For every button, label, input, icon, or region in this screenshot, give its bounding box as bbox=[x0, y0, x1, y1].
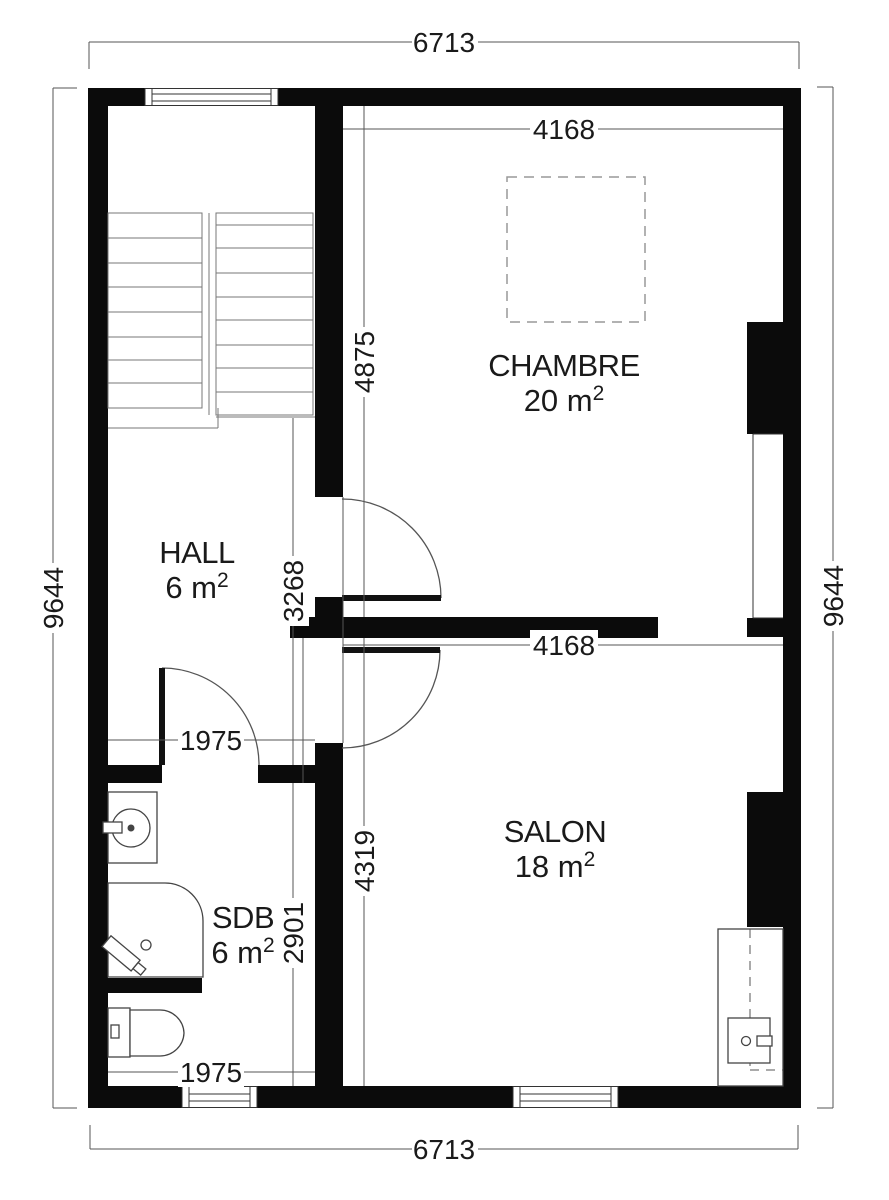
dim-sdb-depth: 2901 bbox=[277, 783, 309, 1086]
door-chambre bbox=[342, 499, 441, 598]
dim-hall-depth-label: 3268 bbox=[278, 560, 309, 622]
dim-salon-width-label: 4168 bbox=[533, 630, 595, 661]
label-chambre-area: 20 m2 bbox=[524, 382, 605, 418]
dim-top-label: 6713 bbox=[413, 27, 475, 58]
label-salon-area: 18 m2 bbox=[515, 848, 596, 884]
window-bottom-sdb bbox=[182, 1087, 257, 1108]
wall-chambre-salon-right-stub bbox=[747, 618, 783, 637]
sink-drain bbox=[128, 825, 135, 832]
wall-center-upper bbox=[315, 106, 343, 497]
sink bbox=[103, 792, 157, 863]
label-chambre: CHAMBRE bbox=[488, 348, 640, 383]
dim-chambre-width: 4168 bbox=[343, 114, 783, 145]
staircase bbox=[108, 213, 315, 428]
wall-left bbox=[88, 88, 108, 1108]
dim-hall-opening: 1975 bbox=[108, 725, 315, 756]
dim-hall-opening-label: 1975 bbox=[180, 725, 242, 756]
dim-chambre-depth-label: 4875 bbox=[349, 331, 380, 393]
dim-right: 9644 bbox=[817, 87, 849, 1108]
dim-bottom: 6713 bbox=[90, 1125, 798, 1165]
wall-chambre-salon bbox=[290, 617, 658, 638]
wall-hall-sdb-left bbox=[108, 765, 162, 783]
wall-right bbox=[783, 88, 801, 1108]
window-bottom-salon bbox=[513, 1087, 618, 1108]
toilet-button bbox=[111, 1025, 119, 1038]
wall-center-lower bbox=[315, 743, 343, 1086]
dim-chambre-width-label: 4168 bbox=[533, 114, 595, 145]
window-top bbox=[145, 89, 278, 106]
label-sdb-area: 6 m2 bbox=[211, 934, 274, 970]
toilet bbox=[108, 1008, 184, 1057]
door-salon bbox=[342, 650, 440, 748]
dim-chambre-depth: 4875 bbox=[348, 106, 380, 617]
skylight-dashed-square bbox=[507, 177, 645, 322]
boiler-unit bbox=[718, 929, 783, 1086]
dim-salon-depth-label: 4319 bbox=[349, 830, 380, 892]
dim-left-label: 9644 bbox=[38, 567, 69, 629]
fixtures bbox=[102, 792, 203, 1057]
dim-top: 6713 bbox=[89, 26, 799, 69]
stair-landing bbox=[108, 408, 315, 428]
bathtub bbox=[102, 883, 203, 977]
stair-right-flight bbox=[216, 213, 313, 415]
dim-salon-depth: 4319 bbox=[348, 638, 380, 1086]
dim-sdb-opening-label: 1975 bbox=[180, 1057, 242, 1088]
pier-salon-right bbox=[747, 792, 783, 927]
label-hall-area: 6 m2 bbox=[165, 569, 228, 605]
dim-left: 9644 bbox=[37, 88, 77, 1108]
dim-hall-depth: 3268 bbox=[277, 418, 309, 765]
toilet-bowl bbox=[130, 1010, 184, 1056]
sink-tap bbox=[103, 822, 122, 833]
dim-sdb-depth-label: 2901 bbox=[278, 902, 309, 964]
label-sdb: SDB bbox=[212, 900, 274, 935]
stair-left-flight bbox=[108, 213, 202, 408]
dim-bottom-label: 6713 bbox=[413, 1134, 475, 1165]
dim-sdb-opening: 1975 bbox=[108, 1057, 315, 1088]
pier-chambre-right bbox=[747, 322, 783, 434]
floor-plan: 6713 6713 9644 9644 bbox=[0, 0, 889, 1200]
wall-hall-sdb-right bbox=[258, 765, 343, 783]
wall-sdb-stub bbox=[108, 978, 202, 993]
label-salon: SALON bbox=[504, 814, 607, 849]
window-chambre-right bbox=[753, 434, 783, 618]
label-hall: HALL bbox=[159, 535, 235, 570]
dim-right-label: 9644 bbox=[818, 565, 849, 627]
